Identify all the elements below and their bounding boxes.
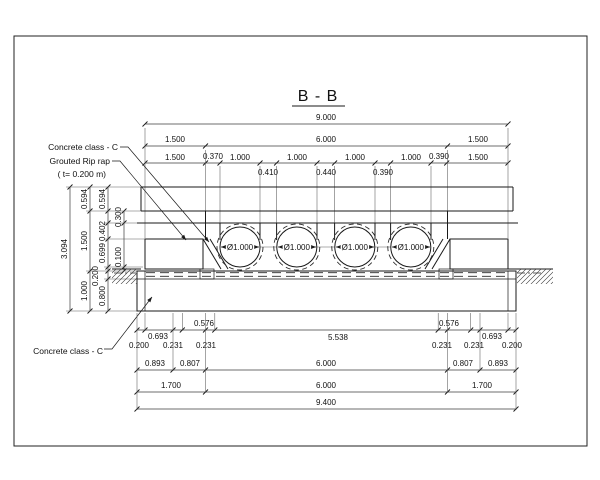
- dim-label: 0.390: [429, 152, 450, 161]
- dim-label: 9.000: [316, 113, 337, 122]
- dim-label: 0.594: [80, 188, 89, 209]
- dim-label: 0.200: [129, 341, 150, 350]
- pipe-diameter-label: Ø1.000: [284, 243, 311, 252]
- dim-label: 0.200: [91, 265, 100, 286]
- dim-label: 0.693: [482, 332, 503, 341]
- concrete-class-label-bottom: Concrete class - C: [33, 346, 103, 356]
- dim-label: 6.000: [316, 381, 337, 390]
- dim-label: 0.594: [98, 188, 107, 209]
- dim-label: 1.500: [468, 153, 489, 162]
- dim-label: 1.000: [287, 153, 308, 162]
- dim-label: 0.231: [196, 341, 217, 350]
- pipe-diameter-label: Ø1.000: [227, 243, 254, 252]
- dim-label: 6.000: [316, 359, 337, 368]
- dim-label: 1.000: [345, 153, 366, 162]
- dim-label: 0.893: [145, 359, 166, 368]
- dim-label: 0.300: [114, 206, 123, 227]
- dim-label: 1.500: [468, 135, 489, 144]
- dim-label: 6.000: [316, 135, 337, 144]
- dim-label: 0.231: [464, 341, 485, 350]
- dim-label: 3.094: [60, 238, 69, 259]
- dim-label: 1.700: [472, 381, 493, 390]
- dim-label: 0.410: [258, 168, 279, 177]
- dim-label: 1.000: [401, 153, 422, 162]
- dim-label: 0.231: [432, 341, 453, 350]
- riprap-label-line2: ( t= 0.200 m): [58, 169, 107, 179]
- title-text: B - B: [298, 88, 339, 105]
- dim-label: 0.699: [98, 242, 107, 263]
- dim-label: 1.500: [165, 135, 186, 144]
- dim-label: 0.200: [502, 341, 523, 350]
- dim-label: 0.693: [148, 332, 169, 341]
- pipe-diameter-label: Ø1.000: [342, 243, 369, 252]
- concrete-class-label-top: Concrete class - C: [48, 142, 118, 152]
- dim-label: 1.500: [80, 230, 89, 251]
- dim-label: 0.893: [488, 359, 509, 368]
- dim-label: 0.100: [114, 246, 123, 267]
- drawing-sheet: B - B 9.000 1.500 6.000 1.500 1.500 0.37…: [0, 0, 600, 480]
- pipe-diameter-label: Ø1.000: [398, 243, 425, 252]
- section-drawing: B - B 9.000 1.500 6.000 1.500 1.500 0.37…: [0, 0, 600, 480]
- dim-label: 0.800: [98, 285, 107, 306]
- ground-hatch-left: [112, 269, 137, 284]
- dim-label: 9.400: [316, 398, 337, 407]
- dim-label: 0.807: [180, 359, 201, 368]
- dim-label: 0.402: [98, 220, 107, 241]
- section-title: B - B: [292, 88, 345, 106]
- riprap-label-line1: Grouted Rip rap: [50, 156, 111, 166]
- dim-label: 5.538: [328, 333, 349, 342]
- dim-label: 0.370: [203, 152, 224, 161]
- dim-label: 1.700: [161, 381, 182, 390]
- dim-label: 1.500: [165, 153, 186, 162]
- dim-label: 0.576: [439, 319, 460, 328]
- dim-label: 1.000: [230, 153, 251, 162]
- ground-hatch-right: [517, 269, 553, 284]
- dim-label: 0.807: [453, 359, 474, 368]
- dim-label: 0.440: [316, 168, 337, 177]
- dim-label: 1.000: [80, 280, 89, 301]
- dim-label: 0.576: [194, 319, 215, 328]
